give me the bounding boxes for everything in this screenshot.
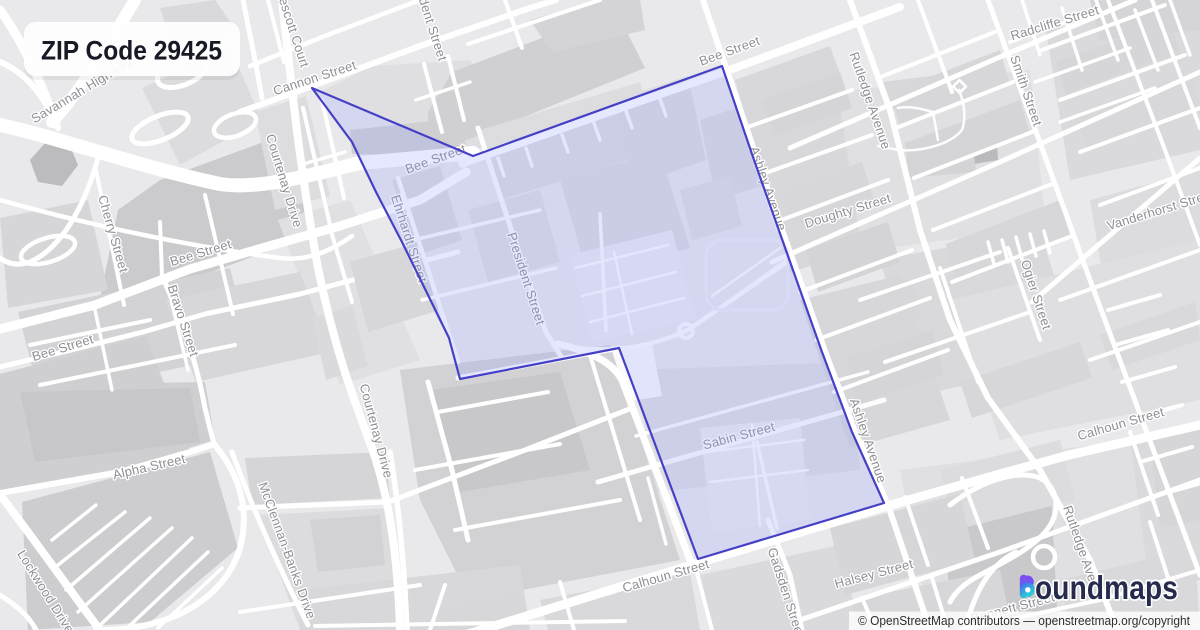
svg-text:© OpenStreetMap contributors —: © OpenStreetMap contributors — openstree…	[858, 613, 1190, 628]
svg-text:ZIP Code 29425: ZIP Code 29425	[41, 36, 222, 66]
svg-text:oundmaps: oundmaps	[1035, 569, 1178, 606]
